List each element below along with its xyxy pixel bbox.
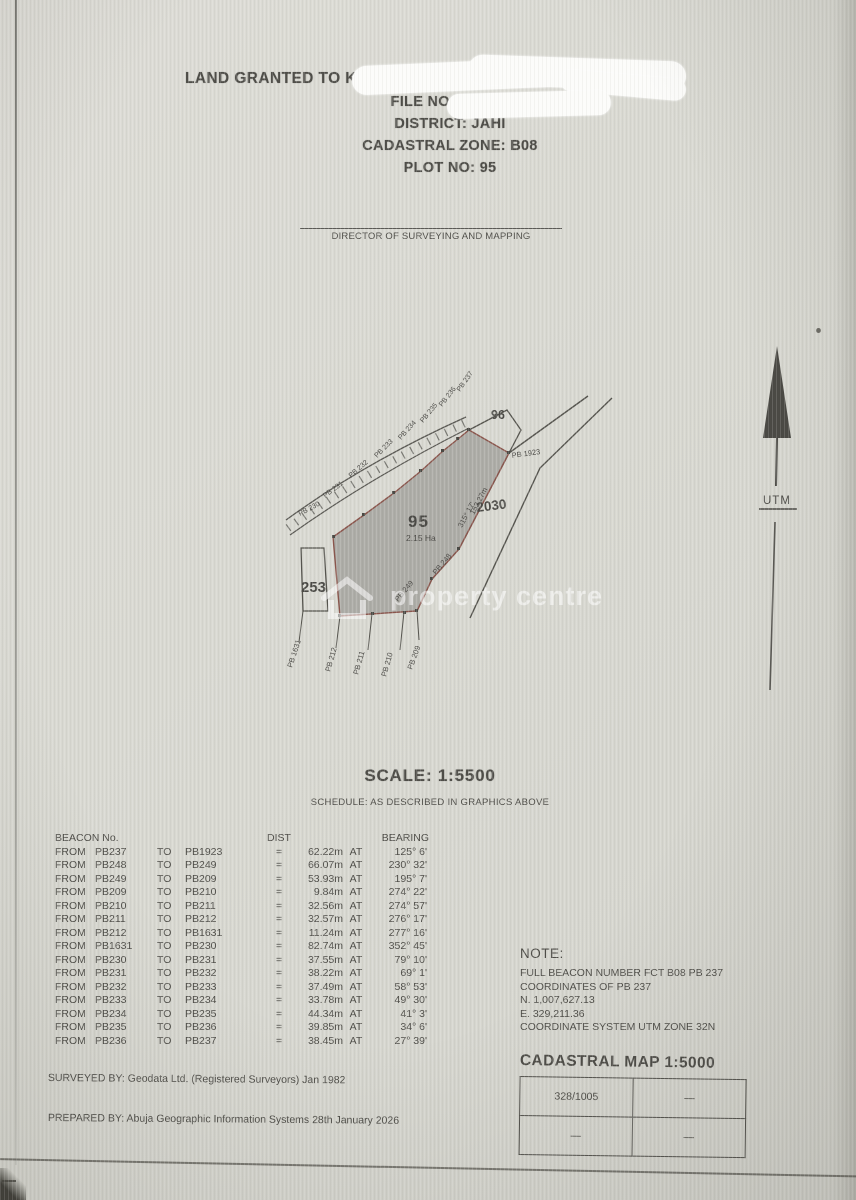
- scale-title: SCALE: 1:5500: [250, 766, 610, 786]
- schedule-row: FROM PB210 TO PB211 = 32.56m AT 274° 57': [55, 900, 429, 914]
- to-label: TO: [157, 900, 185, 914]
- at-label: AT: [343, 886, 369, 900]
- schedule-row: FROM PB232 TO PB233 = 37.49m AT 58° 53': [55, 981, 429, 995]
- signature-line: DIRECTOR OF SURVEYING AND MAPPING: [300, 228, 562, 242]
- to-beacon: PB1923: [185, 846, 263, 860]
- at-label: AT: [343, 1021, 369, 1035]
- north-arrow-head: [763, 346, 791, 438]
- to-label: TO: [157, 981, 185, 995]
- svg-text:PB 234: PB 234: [397, 420, 418, 442]
- to-label: TO: [157, 1008, 185, 1022]
- equals-sign: =: [263, 967, 295, 981]
- to-label: TO: [157, 940, 185, 954]
- distance-value: 37.55m: [295, 954, 343, 968]
- bearing-value: 79° 10': [369, 954, 427, 968]
- from-label: FROM: [55, 1035, 95, 1049]
- to-label: TO: [157, 1035, 185, 1049]
- to-label: TO: [157, 967, 185, 981]
- from-label: FROM: [55, 859, 95, 873]
- surveyed-by-line: SURVEYED BY: Geodata Ltd. (Registered Su…: [48, 1072, 346, 1086]
- from-label: FROM: [55, 981, 95, 995]
- equals-sign: =: [263, 846, 295, 860]
- to-beacon: PB232: [185, 967, 263, 981]
- to-beacon: PB249: [185, 859, 263, 873]
- survey-plan-map: 95 2.15 Ha 253 96 2030 PB 1923 152.27m 3…: [260, 368, 640, 678]
- equals-sign: =: [263, 900, 295, 914]
- from-beacon: PB212: [95, 927, 157, 941]
- schedule-row: FROM PB236 TO PB237 = 38.45m AT 27° 39': [55, 1035, 429, 1049]
- distance-value: 37.49m: [295, 981, 343, 995]
- schedule-row: FROM PB237 TO PB1923 = 62.22m AT 125° 6': [55, 846, 429, 860]
- svg-text:PB 235: PB 235: [419, 402, 439, 424]
- note-line: FULL BEACON NUMBER FCT B08 PB 237: [520, 967, 723, 981]
- from-beacon: PB232: [95, 981, 157, 995]
- to-label: TO: [157, 859, 185, 873]
- screen-edge-bottom: [0, 1158, 856, 1178]
- distance-value: 11.24m: [295, 927, 343, 941]
- from-beacon: PB234: [95, 1008, 157, 1022]
- map-sheet-cell: —: [633, 1078, 747, 1119]
- house-icon: [318, 572, 376, 620]
- beacon-schedule-table: BEACON No. DIST BEARING FROM PB237 TO PB…: [55, 832, 429, 1048]
- distance-value: 9.84m: [295, 886, 343, 900]
- from-label: FROM: [55, 940, 95, 954]
- schedule-header-bearing: BEARING: [359, 832, 429, 846]
- plot-96-label: 96: [491, 408, 505, 422]
- at-label: AT: [343, 981, 369, 995]
- schedule-row: FROM PB209 TO PB210 = 9.84m AT 274° 22': [55, 886, 429, 900]
- to-beacon: PB236: [185, 1021, 263, 1035]
- bearing-value: 125° 6': [369, 846, 427, 860]
- to-label: TO: [157, 873, 185, 887]
- svg-text:PB 237: PB 237: [456, 370, 475, 393]
- parcel-area-label: 2.15 Ha: [406, 533, 436, 543]
- from-beacon: PB235: [95, 1021, 157, 1035]
- equals-sign: =: [263, 1008, 295, 1022]
- note-block: NOTE: FULL BEACON NUMBER FCT B08 PB 237 …: [520, 946, 723, 1035]
- schedule-header-dist: DIST: [263, 832, 359, 846]
- at-label: AT: [343, 927, 369, 941]
- cadastral-survey-document: LAND GRANTED TO KII FILE NO: MISC 1 DIST…: [0, 0, 856, 1200]
- to-beacon: PB237: [185, 1035, 263, 1049]
- svg-text:PB 212: PB 212: [323, 646, 338, 672]
- to-beacon: PB211: [185, 900, 263, 914]
- at-label: AT: [343, 846, 369, 860]
- prepared-by-line: PREPARED BY: Abuja Geographic Informatio…: [48, 1112, 399, 1127]
- parcel-number-label: 95: [408, 512, 429, 531]
- at-label: AT: [343, 873, 369, 887]
- north-arrow: UTM: [748, 338, 808, 703]
- cadastral-map-title: CADASTRAL MAP 1:5000: [520, 1052, 747, 1073]
- land-granted-title: LAND GRANTED TO KII: [185, 70, 366, 88]
- at-label: AT: [343, 994, 369, 1008]
- schedule-row: FROM PB230 TO PB231 = 37.55m AT 79° 10': [55, 954, 429, 968]
- from-beacon: PB237: [95, 846, 157, 860]
- signature-label: DIRECTOR OF SURVEYING AND MAPPING: [332, 231, 531, 242]
- from-beacon: PB209: [95, 886, 157, 900]
- distance-value: 53.93m: [295, 873, 343, 887]
- bottom-beacon-labels: PB 1631 PB 212 PB 211 PB 210 PB 209: [285, 638, 422, 677]
- schedule-row: FROM PB212 TO PB1631 = 11.24m AT 277° 16…: [55, 927, 429, 941]
- svg-text:PB 210: PB 210: [379, 651, 394, 677]
- from-label: FROM: [55, 873, 95, 887]
- bearing-value: 34° 6': [369, 1021, 427, 1035]
- bearing-value: 69° 1': [369, 967, 427, 981]
- bearing-value: 230° 32': [369, 859, 427, 873]
- at-label: AT: [343, 940, 369, 954]
- to-label: TO: [157, 886, 185, 900]
- distance-value: 62.22m: [295, 846, 343, 860]
- equals-sign: =: [263, 913, 295, 927]
- at-label: AT: [343, 1008, 369, 1022]
- schedule-row: FROM PB233 TO PB234 = 33.78m AT 49° 30': [55, 994, 429, 1008]
- schedule-row: FROM PB248 TO PB249 = 66.07m AT 230° 32': [55, 859, 429, 873]
- from-label: FROM: [55, 994, 95, 1008]
- to-beacon: PB209: [185, 873, 263, 887]
- from-beacon: PB1631: [95, 940, 157, 954]
- dark-corner: [0, 1168, 26, 1200]
- distance-value: 82.74m: [295, 940, 343, 954]
- dust-speck: [816, 328, 821, 333]
- note-line: N. 1,007,627.13: [520, 994, 723, 1008]
- from-label: FROM: [55, 927, 95, 941]
- distance-value: 39.85m: [295, 1021, 343, 1035]
- to-beacon: PB230: [185, 940, 263, 954]
- schedule-row: FROM PB235 TO PB236 = 39.85m AT 34° 6': [55, 1021, 429, 1035]
- schedule-row: FROM PB211 TO PB212 = 32.57m AT 276° 17': [55, 913, 429, 927]
- from-label: FROM: [55, 913, 95, 927]
- screen-edge-left: [15, 0, 17, 1165]
- schedule-row: FROM PB1631 TO PB230 = 82.74m AT 352° 45…: [55, 940, 429, 954]
- from-beacon: PB210: [95, 900, 157, 914]
- bearing-value: 352° 45': [369, 940, 427, 954]
- equals-sign: =: [263, 859, 295, 873]
- from-beacon: PB233: [95, 994, 157, 1008]
- to-label: TO: [157, 846, 185, 860]
- from-beacon: PB236: [95, 1035, 157, 1049]
- bearing-value: 276° 17': [369, 913, 427, 927]
- to-label: TO: [157, 1021, 185, 1035]
- from-label: FROM: [55, 967, 95, 981]
- plot-no-line: PLOT NO: 95: [250, 160, 650, 176]
- cadastral-map-index: CADASTRAL MAP 1:5000 328/1005 — — —: [519, 1052, 747, 1158]
- note-line: COORDINATES OF PB 237: [520, 981, 723, 995]
- distance-value: 66.07m: [295, 859, 343, 873]
- note-line: E. 329,211.36: [520, 1008, 723, 1022]
- to-beacon: PB235: [185, 1008, 263, 1022]
- watermark: property centre: [318, 572, 603, 620]
- schedule-row: FROM PB234 TO PB235 = 44.34m AT 41° 3': [55, 1008, 429, 1022]
- cadastral-zone-line: CADASTRAL ZONE: B08: [250, 138, 650, 154]
- equals-sign: =: [263, 886, 295, 900]
- bearing-value: 41° 3': [369, 1008, 427, 1022]
- district-line: DISTRICT: JAHI: [250, 116, 650, 132]
- to-beacon: PB212: [185, 913, 263, 927]
- shadow-band-right: [834, 0, 856, 1200]
- to-beacon: PB210: [185, 886, 263, 900]
- watermark-text: property centre: [390, 581, 603, 612]
- map-sheet-cell: —: [632, 1117, 746, 1158]
- distance-value: 32.57m: [295, 913, 343, 927]
- at-label: AT: [343, 859, 369, 873]
- from-beacon: PB248: [95, 859, 157, 873]
- schedule-header-beacon: BEACON No.: [55, 832, 263, 846]
- to-label: TO: [157, 913, 185, 927]
- from-label: FROM: [55, 900, 95, 914]
- from-beacon: PB231: [95, 967, 157, 981]
- from-beacon: PB230: [95, 954, 157, 968]
- from-label: FROM: [55, 1021, 95, 1035]
- to-label: TO: [157, 994, 185, 1008]
- to-beacon: PB231: [185, 954, 263, 968]
- equals-sign: =: [263, 1021, 295, 1035]
- to-label: TO: [157, 954, 185, 968]
- distance-value: 44.34m: [295, 1008, 343, 1022]
- note-title: NOTE:: [520, 946, 723, 961]
- redaction-scribble: [447, 90, 612, 119]
- at-label: AT: [343, 967, 369, 981]
- svg-text:PB 1631: PB 1631: [285, 638, 302, 668]
- bearing-value: 27° 39': [369, 1035, 427, 1049]
- bearing-value: 277° 16': [369, 927, 427, 941]
- corner-tick: [2, 1180, 16, 1182]
- bearing-value: 195° 7': [369, 873, 427, 887]
- svg-text:PB 231: PB 231: [322, 480, 345, 499]
- distance-value: 38.45m: [295, 1035, 343, 1049]
- svg-text:PB 209: PB 209: [405, 644, 422, 670]
- equals-sign: =: [263, 873, 295, 887]
- equals-sign: =: [263, 1035, 295, 1049]
- bearing-value: 274° 57': [369, 900, 427, 914]
- svg-text:PB 233: PB 233: [373, 438, 394, 459]
- equals-sign: =: [263, 981, 295, 995]
- at-label: AT: [343, 900, 369, 914]
- schedule-header-row: BEACON No. DIST BEARING: [55, 832, 429, 846]
- from-beacon: PB249: [95, 873, 157, 887]
- utm-label: UTM: [763, 495, 791, 507]
- distance-value: 38.22m: [295, 967, 343, 981]
- note-line: COORDINATE SYSTEM UTM ZONE 32N: [520, 1021, 723, 1035]
- at-label: AT: [343, 1035, 369, 1049]
- from-label: FROM: [55, 846, 95, 860]
- to-beacon: PB234: [185, 994, 263, 1008]
- equals-sign: =: [263, 954, 295, 968]
- map-sheet-cell: —: [519, 1116, 633, 1157]
- to-label: TO: [157, 927, 185, 941]
- bearing-value: 274° 22': [369, 886, 427, 900]
- bearing-value: 49° 30': [369, 994, 427, 1008]
- from-label: FROM: [55, 954, 95, 968]
- schedule-rows: FROM PB237 TO PB1923 = 62.22m AT 125° 6'…: [55, 846, 429, 1049]
- to-beacon: PB233: [185, 981, 263, 995]
- equals-sign: =: [263, 940, 295, 954]
- svg-text:PB 211: PB 211: [351, 650, 366, 676]
- at-label: AT: [343, 954, 369, 968]
- to-beacon: PB1631: [185, 927, 263, 941]
- distance-value: 32.56m: [295, 900, 343, 914]
- from-label: FROM: [55, 1008, 95, 1022]
- schedule-row: FROM PB231 TO PB232 = 38.22m AT 69° 1': [55, 967, 429, 981]
- map-sheet-table: 328/1005 — — —: [519, 1076, 747, 1158]
- at-label: AT: [343, 913, 369, 927]
- schedule-row: FROM PB249 TO PB209 = 53.93m AT 195° 7': [55, 873, 429, 887]
- equals-sign: =: [263, 927, 295, 941]
- schedule-subtitle: SCHEDULE: AS DESCRIBED IN GRAPHICS ABOVE: [230, 797, 630, 808]
- map-sheet-cell: 328/1005: [520, 1077, 634, 1118]
- from-beacon: PB211: [95, 913, 157, 927]
- equals-sign: =: [263, 994, 295, 1008]
- from-label: FROM: [55, 886, 95, 900]
- distance-value: 33.78m: [295, 994, 343, 1008]
- bearing-value: 58° 53': [369, 981, 427, 995]
